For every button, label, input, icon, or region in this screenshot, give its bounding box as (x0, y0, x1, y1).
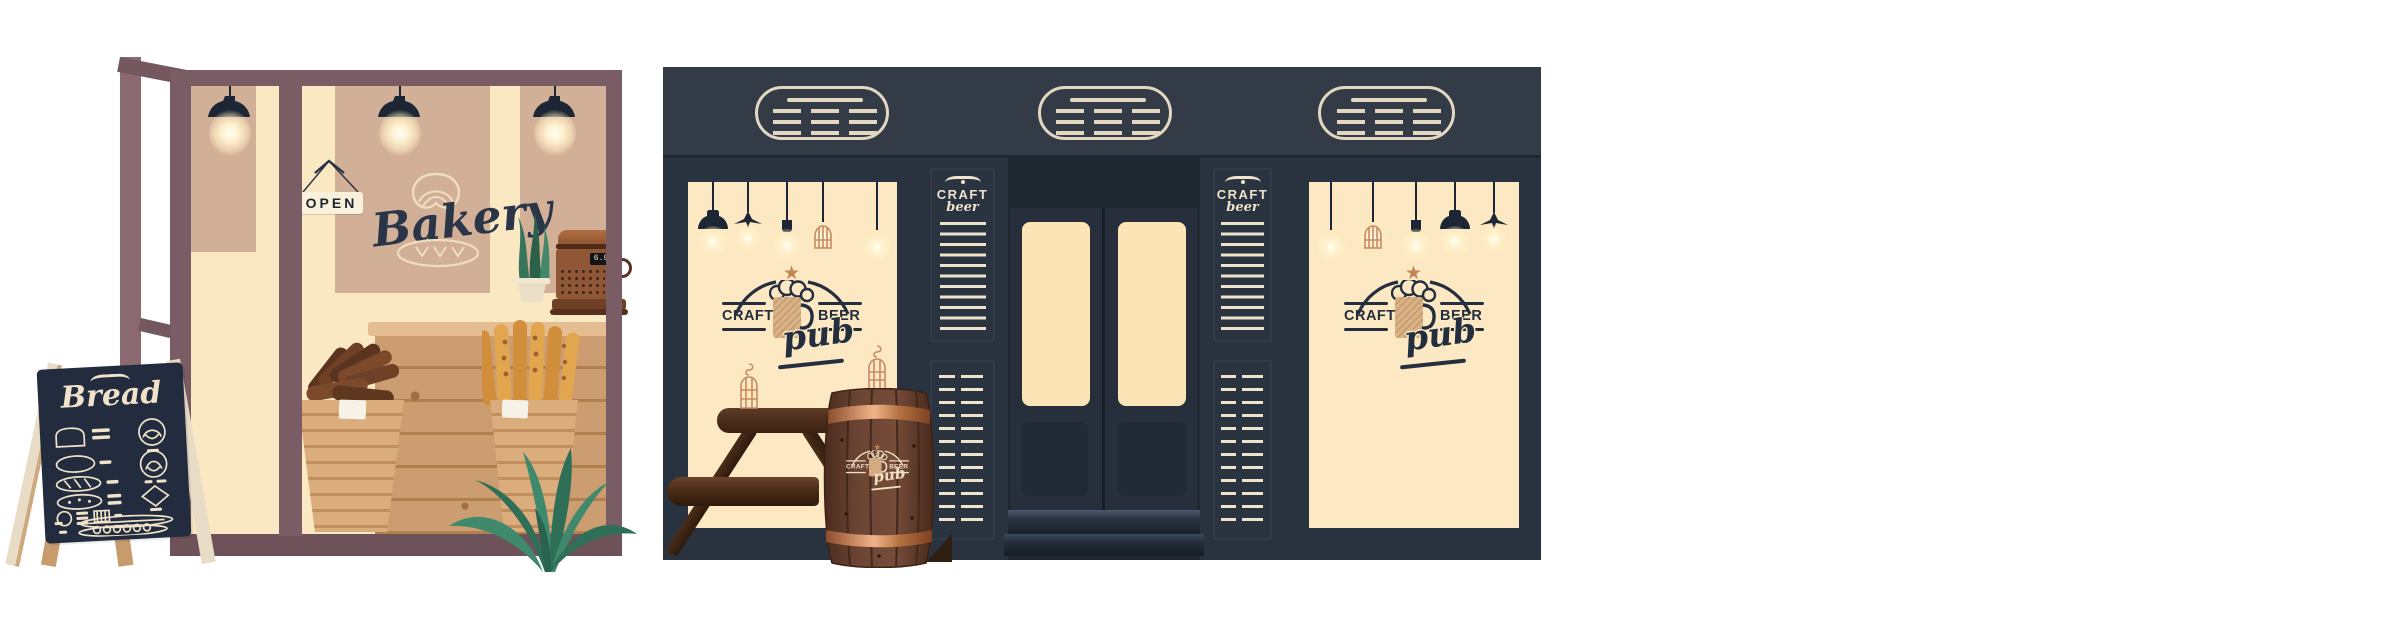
craft-beer-pub-logo: ★ CRAFT BEER pub (722, 266, 862, 372)
door-right (1105, 208, 1197, 510)
door-panel (1118, 422, 1186, 496)
cage-lantern (812, 182, 834, 252)
cage-lantern (1362, 182, 1384, 252)
door-threshold (1008, 510, 1200, 534)
beer-barrel: ★ CRAFT BEER pub (816, 388, 940, 568)
vent-grille (755, 86, 889, 140)
vent-grille (1318, 86, 1455, 140)
price-dashes (961, 375, 983, 531)
cage-lantern-icon (1362, 220, 1384, 250)
logo-word-pub: pub (1402, 313, 1478, 357)
pendant-lamp (698, 182, 728, 252)
menu-board-subtitle: beer (1213, 202, 1272, 214)
craft-beer-pub-logo: ★ CRAFT BEER pub (1344, 266, 1484, 372)
menu-board-subtitle: beer (930, 202, 995, 214)
star-pendant-lamp (734, 182, 762, 248)
table-cage-lantern (738, 362, 760, 410)
door-divider (1102, 208, 1105, 510)
price-dashes (1221, 375, 1236, 531)
door-window (1118, 222, 1186, 406)
bulb-lamp (780, 182, 794, 254)
menu-board: CRAFT beer (930, 168, 995, 342)
bench (667, 477, 819, 506)
door-left (1010, 208, 1102, 510)
bulb-lamp (1324, 182, 1338, 262)
bulb-lamp (1409, 182, 1423, 254)
pendant-lamp (1440, 182, 1470, 252)
logo-word-craft: CRAFT (846, 463, 866, 470)
logo-word-pub: pub (872, 465, 906, 485)
star-pendant-lamp (1480, 182, 1508, 248)
pub-storefront: ★ CRAFT BEER pub ★ (0, 0, 2400, 630)
door-step (1004, 534, 1204, 556)
logo-word-pub: pub (780, 313, 856, 357)
craft-beer-pub-logo: ★ CRAFT BEER pub (846, 444, 909, 492)
vent-grille (1038, 86, 1172, 140)
price-dashes (1242, 375, 1263, 531)
logo-word-craft: CRAFT (722, 308, 766, 324)
door-panel (1022, 422, 1088, 496)
storefront-illustration: OPEN Bakery 6.99 (0, 0, 2400, 630)
menu-board: CRAFT beer (1213, 168, 1272, 342)
cage-lantern-icon (812, 220, 834, 250)
bulb-lamp (870, 182, 884, 262)
menu-lines (940, 222, 986, 334)
door-window (1022, 222, 1090, 406)
menu-board (1213, 360, 1272, 540)
price-dashes (939, 375, 955, 531)
barrel-cage-lantern (866, 344, 888, 391)
logo-word-craft: CRAFT (1344, 308, 1388, 324)
menu-lines (1221, 222, 1264, 334)
